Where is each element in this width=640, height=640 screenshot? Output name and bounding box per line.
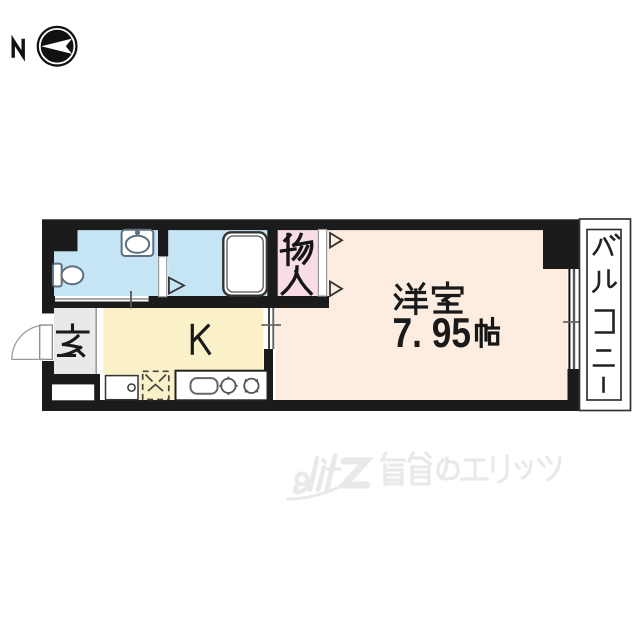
- svg-text:7. 95: 7. 95: [393, 310, 471, 356]
